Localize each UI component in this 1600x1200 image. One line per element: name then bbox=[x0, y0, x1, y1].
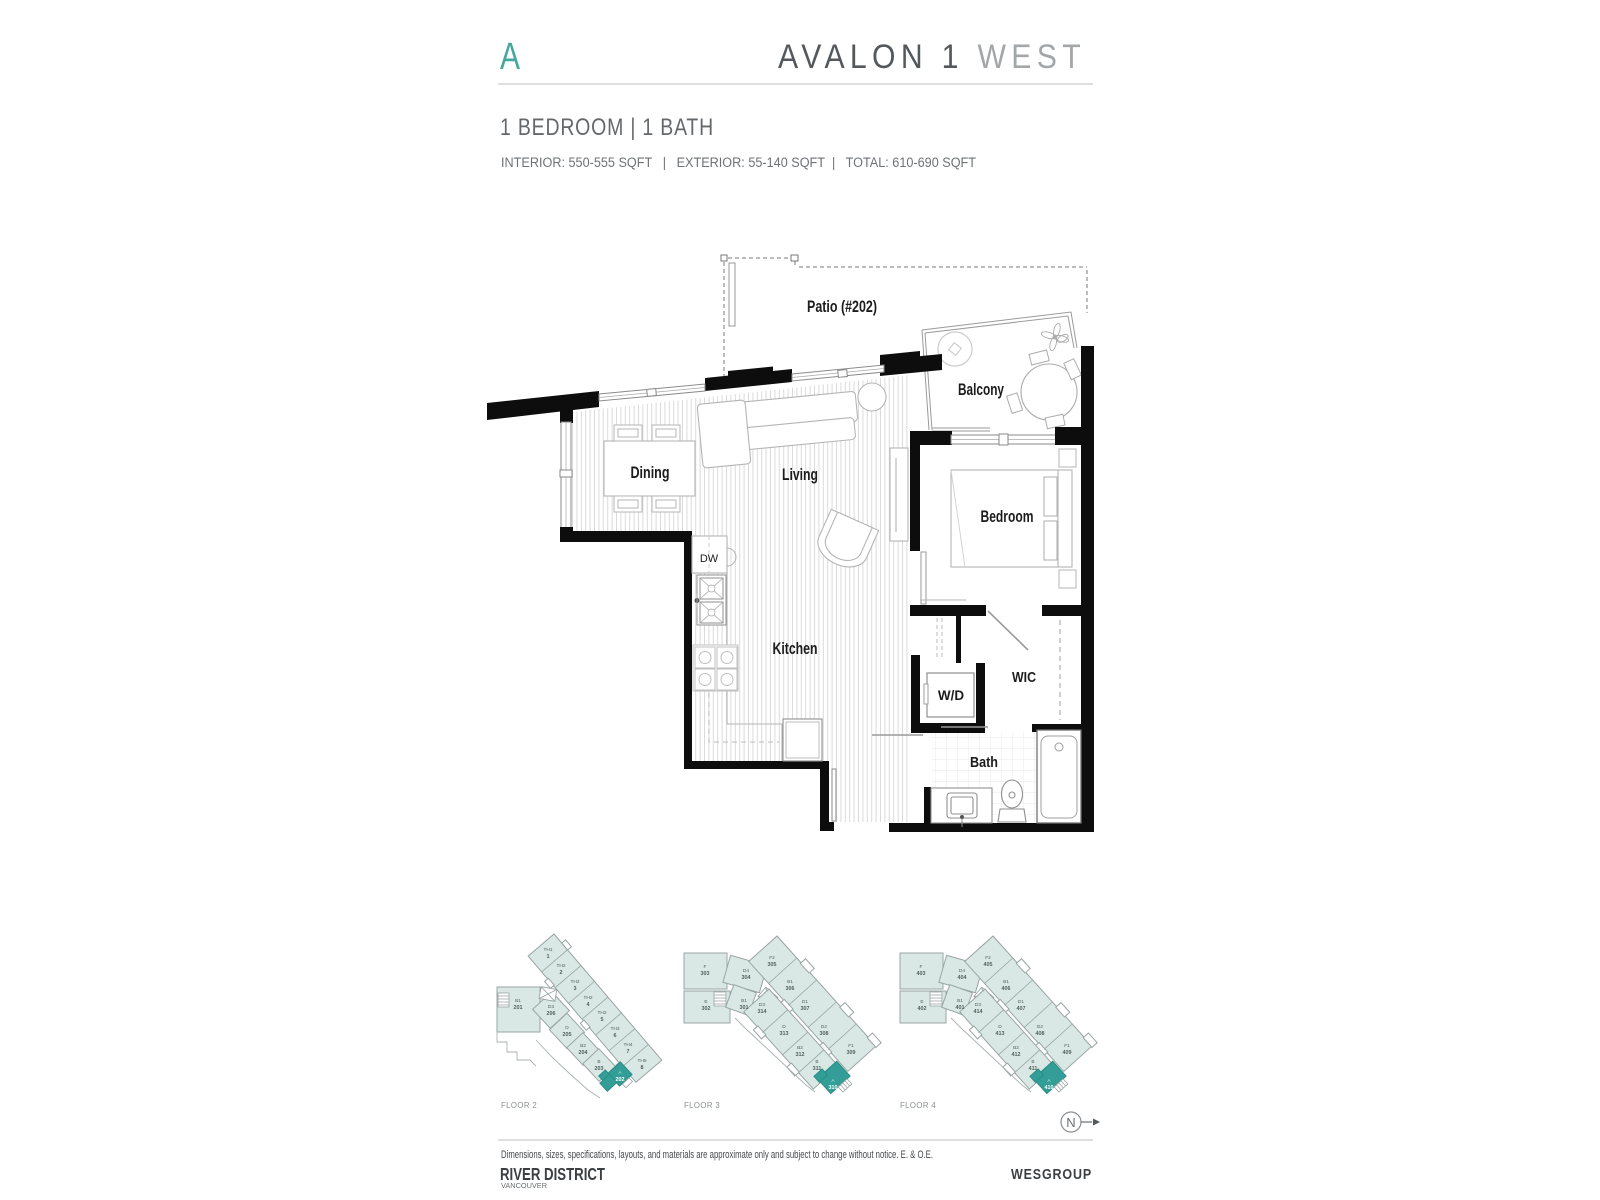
svg-text:203: 203 bbox=[595, 1066, 604, 1072]
svg-text:Living: Living bbox=[782, 466, 818, 484]
svg-text:4: 4 bbox=[587, 1002, 590, 1008]
svg-text:TH5: TH5 bbox=[637, 1058, 646, 1064]
svg-text:313: 313 bbox=[780, 1031, 789, 1037]
svg-text:WESGROUP: WESGROUP bbox=[1011, 1167, 1092, 1183]
svg-text:1: 1 bbox=[547, 954, 550, 960]
svg-text:B2: B2 bbox=[797, 1045, 803, 1051]
svg-text:E: E bbox=[920, 999, 923, 1005]
svg-text:D3: D3 bbox=[975, 1002, 981, 1008]
svg-text:304: 304 bbox=[742, 975, 751, 981]
svg-text:311: 311 bbox=[813, 1066, 822, 1072]
svg-text:409: 409 bbox=[1063, 1050, 1072, 1056]
svg-text:408: 408 bbox=[1036, 1031, 1045, 1037]
svg-text:Dimensions, sizes, specificati: Dimensions, sizes, specifications, layou… bbox=[501, 1149, 933, 1161]
svg-text:F2: F2 bbox=[985, 955, 991, 961]
svg-text:406: 406 bbox=[1002, 986, 1011, 992]
svg-text:302: 302 bbox=[702, 1006, 711, 1012]
svg-text:N: N bbox=[1066, 1115, 1075, 1130]
svg-text:TH2: TH2 bbox=[597, 1010, 606, 1016]
svg-text:B2: B2 bbox=[1013, 1045, 1019, 1051]
svg-text:E: E bbox=[704, 999, 707, 1005]
svg-text:AVALON 1 WEST: AVALON 1 WEST bbox=[778, 38, 1086, 76]
svg-text:Patio (#202): Patio (#202) bbox=[807, 298, 877, 316]
svg-text:A: A bbox=[500, 36, 521, 78]
svg-text:Dining: Dining bbox=[631, 464, 670, 482]
svg-text:3: 3 bbox=[574, 986, 577, 992]
svg-text:WIC: WIC bbox=[1012, 670, 1036, 686]
svg-text:314: 314 bbox=[758, 1009, 767, 1015]
svg-text:405: 405 bbox=[984, 962, 993, 968]
svg-text:414: 414 bbox=[974, 1009, 983, 1015]
svg-text:FLOOR 4: FLOOR 4 bbox=[900, 1101, 936, 1110]
svg-text:B: B bbox=[1031, 1059, 1034, 1065]
svg-text:D2: D2 bbox=[821, 1024, 827, 1030]
svg-text:309: 309 bbox=[847, 1050, 856, 1056]
svg-text:B1: B1 bbox=[957, 998, 963, 1004]
svg-text:B1: B1 bbox=[1003, 979, 1009, 985]
svg-text:301: 301 bbox=[740, 1005, 749, 1011]
svg-text:D: D bbox=[998, 1024, 1002, 1030]
svg-text:204: 204 bbox=[579, 1050, 588, 1056]
svg-text:306: 306 bbox=[786, 986, 795, 992]
svg-text:D: D bbox=[782, 1024, 786, 1030]
svg-text:INTERIOR: 550-555 SQFT | E: INTERIOR: 550-555 SQFT | EXTERIOR: 55-14… bbox=[501, 155, 976, 170]
svg-text:TH1: TH1 bbox=[543, 947, 552, 953]
svg-text:6: 6 bbox=[614, 1033, 617, 1039]
svg-text:D3: D3 bbox=[759, 1002, 765, 1008]
svg-text:B1: B1 bbox=[787, 979, 793, 985]
svg-text:308: 308 bbox=[820, 1031, 829, 1037]
svg-text:8: 8 bbox=[641, 1065, 644, 1071]
svg-text:B1: B1 bbox=[741, 998, 747, 1004]
svg-text:206: 206 bbox=[547, 1011, 556, 1017]
svg-text:Kitchen: Kitchen bbox=[773, 640, 818, 658]
svg-text:Bedroom: Bedroom bbox=[981, 508, 1034, 526]
svg-text:F1: F1 bbox=[848, 1043, 854, 1049]
svg-text:Bath: Bath bbox=[970, 755, 998, 771]
svg-text:7: 7 bbox=[627, 1049, 630, 1055]
svg-text:307: 307 bbox=[801, 1006, 810, 1012]
svg-text:DW: DW bbox=[700, 553, 719, 565]
svg-text:TH2: TH2 bbox=[570, 979, 579, 985]
svg-text:D4: D4 bbox=[959, 968, 965, 974]
svg-text:413: 413 bbox=[996, 1031, 1005, 1037]
svg-text:5: 5 bbox=[601, 1017, 604, 1023]
svg-text:202: 202 bbox=[616, 1077, 625, 1083]
svg-text:201: 201 bbox=[514, 1005, 523, 1011]
svg-text:F2: F2 bbox=[769, 955, 775, 961]
svg-text:411: 411 bbox=[1029, 1066, 1038, 1072]
svg-text:D1: D1 bbox=[1018, 999, 1024, 1005]
svg-text:TH3: TH3 bbox=[610, 1026, 619, 1032]
svg-text:2: 2 bbox=[560, 970, 563, 976]
svg-text:TH4: TH4 bbox=[623, 1042, 632, 1048]
svg-text:TH2: TH2 bbox=[556, 963, 565, 969]
svg-text:1 BEDROOM | 1 BATH: 1 BEDROOM | 1 BATH bbox=[500, 114, 714, 141]
svg-text:310: 310 bbox=[829, 1085, 838, 1091]
svg-text:407: 407 bbox=[1017, 1006, 1026, 1012]
svg-text:D1: D1 bbox=[802, 999, 808, 1005]
svg-text:412: 412 bbox=[1012, 1052, 1021, 1058]
svg-text:B: B bbox=[815, 1059, 818, 1065]
svg-text:205: 205 bbox=[563, 1032, 572, 1038]
svg-text:W/D: W/D bbox=[938, 688, 964, 703]
svg-text:Balcony: Balcony bbox=[958, 381, 1005, 399]
svg-text:D2: D2 bbox=[1037, 1024, 1043, 1030]
svg-text:FLOOR 2: FLOOR 2 bbox=[501, 1101, 537, 1110]
svg-text:B2: B2 bbox=[580, 1043, 586, 1049]
svg-text:312: 312 bbox=[796, 1052, 805, 1058]
svg-text:D: D bbox=[565, 1025, 569, 1031]
svg-text:401: 401 bbox=[956, 1005, 965, 1011]
svg-text:B: B bbox=[597, 1059, 600, 1065]
svg-text:404: 404 bbox=[958, 975, 967, 981]
svg-text:410: 410 bbox=[1045, 1085, 1054, 1091]
svg-text:D3: D3 bbox=[548, 1004, 554, 1010]
svg-text:F1: F1 bbox=[1064, 1043, 1070, 1049]
svg-text:VANCOUVER: VANCOUVER bbox=[501, 1181, 548, 1190]
svg-text:402: 402 bbox=[918, 1006, 927, 1012]
svg-text:303: 303 bbox=[701, 971, 710, 977]
svg-text:305: 305 bbox=[768, 962, 777, 968]
svg-text:D4: D4 bbox=[743, 968, 749, 974]
svg-text:FLOOR 3: FLOOR 3 bbox=[684, 1101, 720, 1110]
svg-text:B1: B1 bbox=[515, 998, 521, 1004]
svg-text:403: 403 bbox=[917, 971, 926, 977]
svg-text:F: F bbox=[704, 964, 707, 970]
svg-text:F: F bbox=[920, 964, 923, 970]
svg-text:TH2: TH2 bbox=[583, 995, 592, 1001]
